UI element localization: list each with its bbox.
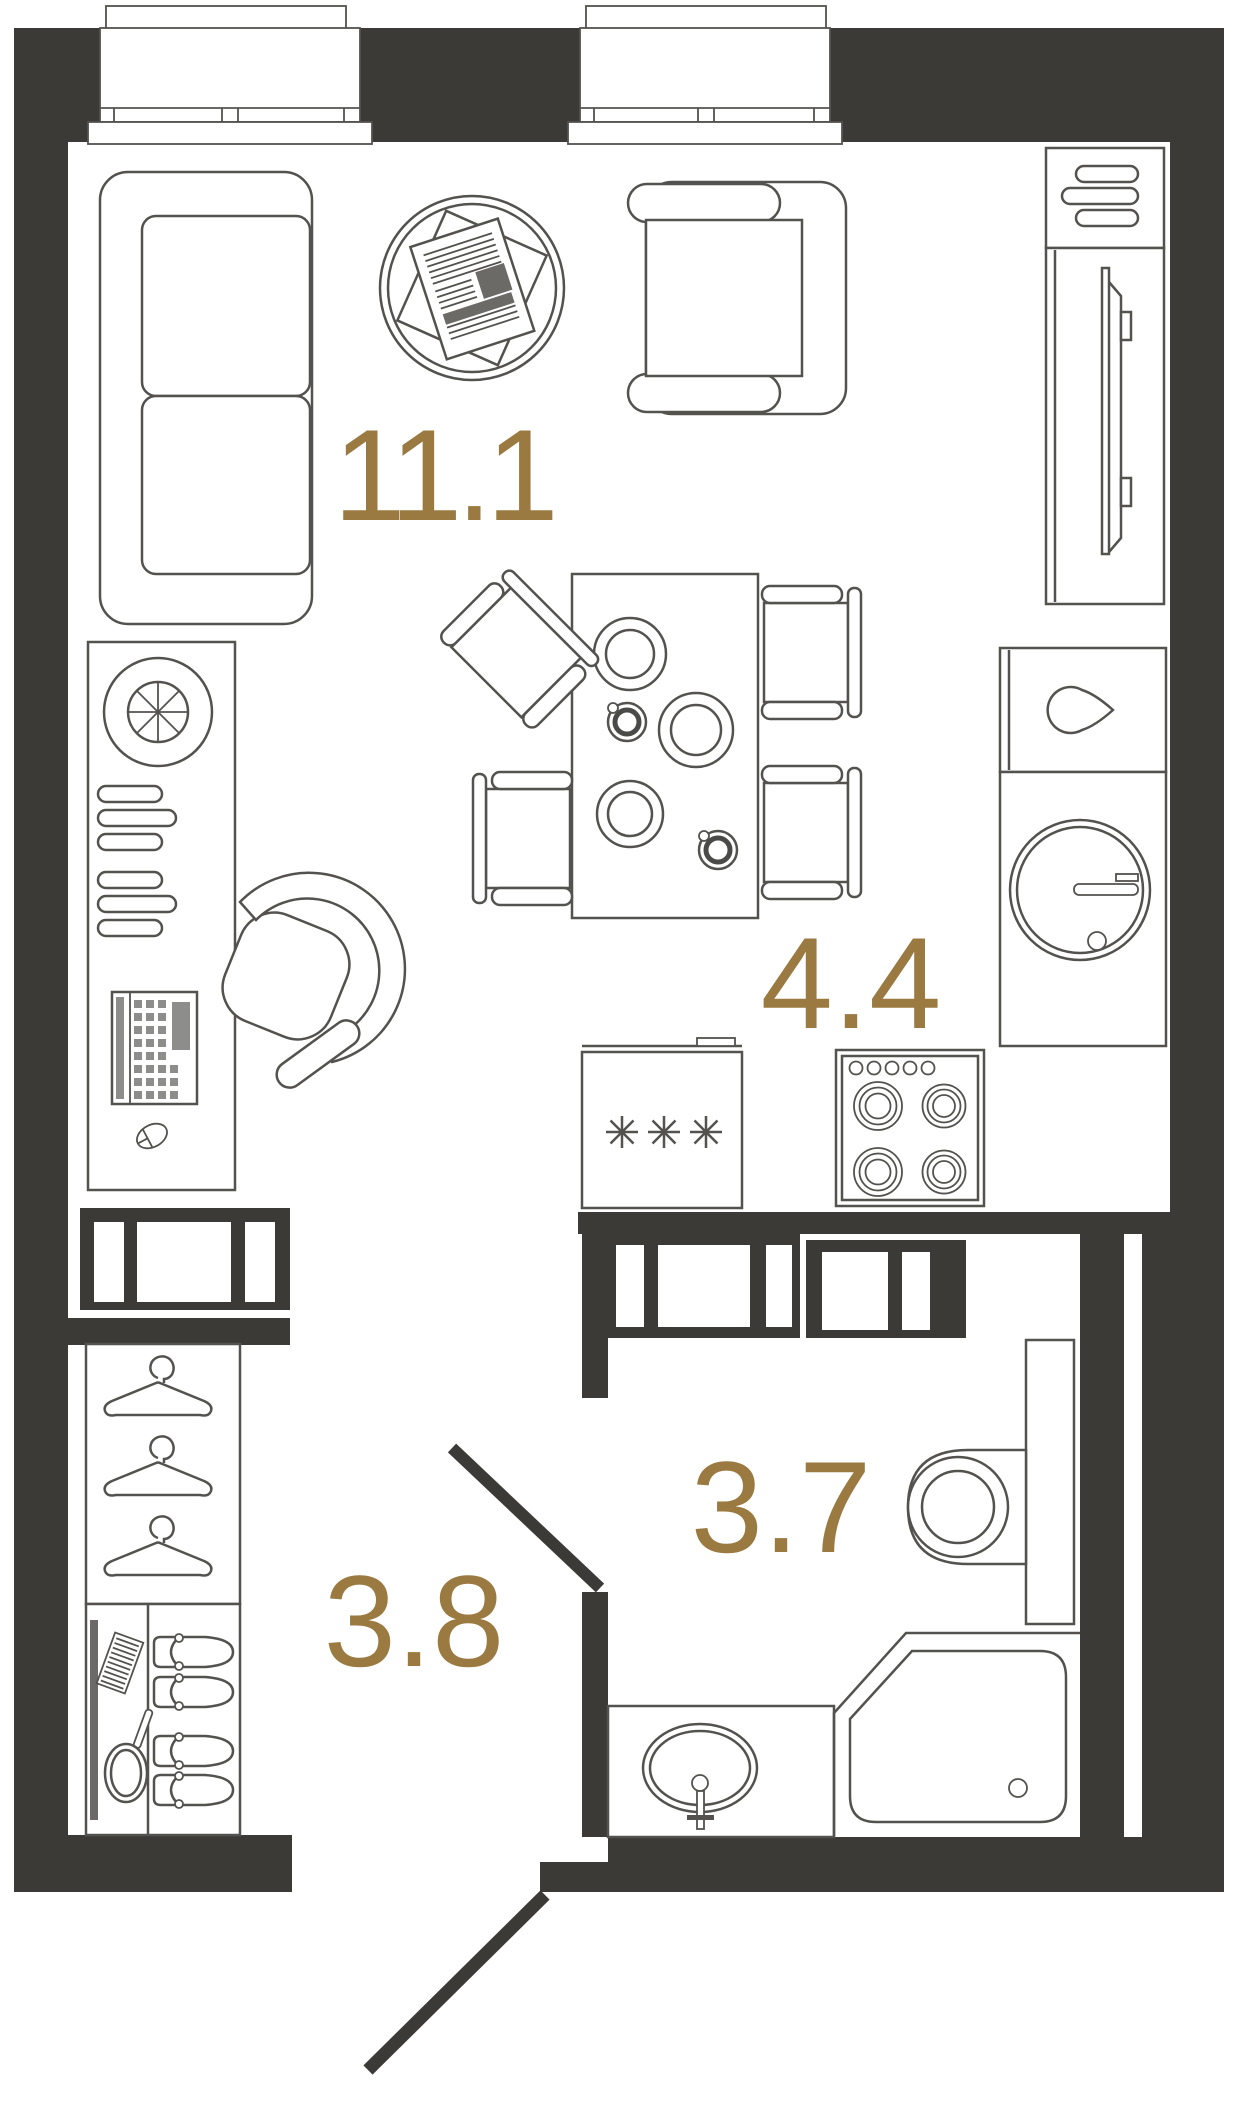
left-wall bbox=[14, 28, 68, 1892]
window-pane bbox=[822, 1252, 888, 1330]
armchair-icon bbox=[628, 182, 846, 414]
entry-jamb bbox=[540, 1862, 608, 1892]
desk-chair-icon bbox=[212, 873, 405, 1093]
entry-door-leaf-icon bbox=[368, 1895, 545, 2070]
toilet-icon bbox=[908, 1340, 1074, 1624]
kitchen-partition-band bbox=[578, 1212, 1170, 1234]
window-outer-sill bbox=[106, 6, 346, 30]
window-2 bbox=[568, 6, 842, 144]
room-label-hallway: 3.8 bbox=[324, 1548, 505, 1694]
wardrobe bbox=[86, 1344, 240, 1604]
chair-icon bbox=[762, 586, 861, 719]
bottom-wall-left bbox=[14, 1835, 292, 1892]
duct-wall bbox=[1080, 1212, 1124, 1837]
window-outer-sill bbox=[586, 6, 826, 30]
floor-plan: 11.1 4.4 3.7 3.8 bbox=[0, 0, 1252, 2102]
stove-icon bbox=[836, 1050, 984, 1206]
chair-icon bbox=[762, 766, 861, 899]
bottom-wall-right bbox=[608, 1837, 1224, 1892]
floor-plan-canvas: 11.1 4.4 3.7 3.8 bbox=[0, 0, 1252, 2102]
sofa-icon bbox=[100, 172, 312, 624]
window-pane bbox=[245, 1222, 275, 1302]
shower-icon bbox=[834, 1633, 1080, 1836]
chair-icon bbox=[473, 772, 572, 905]
window-pane bbox=[766, 1245, 792, 1327]
window-pane bbox=[658, 1245, 750, 1327]
kitchen-counter bbox=[88, 642, 235, 1190]
right-counter bbox=[1000, 648, 1166, 1046]
room-label-kitchen: 4.4 bbox=[761, 910, 942, 1056]
snowflake-icon bbox=[606, 1116, 638, 1148]
keyboard-icon bbox=[112, 992, 197, 1104]
room-label-bathroom: 3.7 bbox=[691, 1434, 872, 1580]
bathroom-wall-lower bbox=[582, 1592, 608, 1837]
bath-partition-window-b bbox=[806, 1240, 966, 1338]
room-label-living: 11.1 bbox=[333, 402, 552, 548]
right-wall-upper bbox=[1170, 28, 1224, 1212]
round-sink-icon bbox=[1010, 820, 1150, 960]
tv-stand-icon bbox=[1046, 148, 1164, 604]
freezer-icon bbox=[582, 1038, 742, 1208]
snowflake-icon bbox=[690, 1116, 722, 1148]
faucet-icon bbox=[1074, 884, 1138, 895]
washbasin-icon bbox=[608, 1706, 834, 1837]
bath-partition-window-a bbox=[604, 1234, 800, 1338]
window-pane bbox=[616, 1245, 644, 1327]
window-sill bbox=[568, 122, 842, 144]
snowflake-icon bbox=[648, 1116, 680, 1148]
window-1 bbox=[88, 6, 372, 144]
window-sill bbox=[88, 122, 372, 144]
window-pane bbox=[902, 1252, 930, 1330]
partition-sill bbox=[68, 1318, 290, 1345]
coffee-table-icon bbox=[380, 196, 564, 380]
window-pane bbox=[137, 1222, 231, 1302]
window-pane bbox=[94, 1222, 124, 1302]
dining-table-icon bbox=[572, 574, 758, 918]
kitchen-sink-icon bbox=[104, 658, 212, 766]
right-wall-lower bbox=[1142, 1212, 1224, 1892]
hall-partition-window bbox=[68, 1208, 290, 1345]
